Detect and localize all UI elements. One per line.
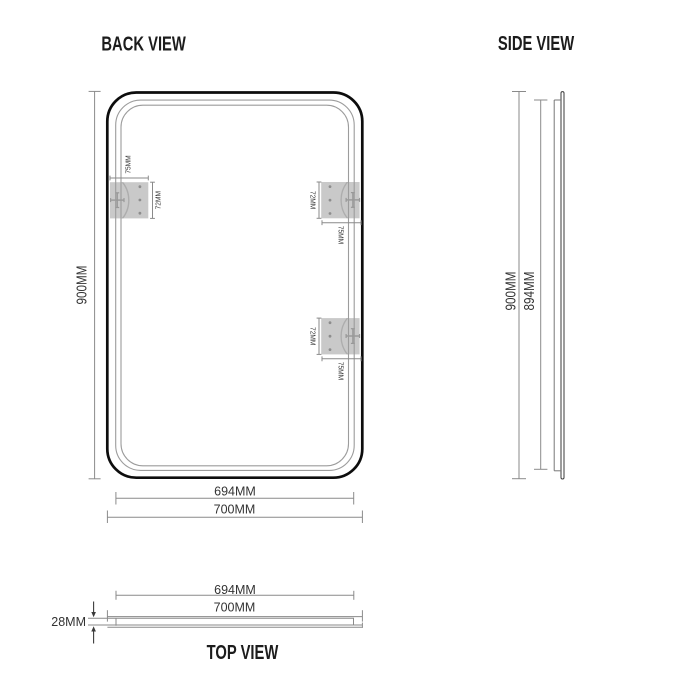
svg-text:900MM: 900MM [502, 272, 519, 311]
svg-text:75MM: 75MM [125, 155, 132, 173]
svg-text:700MM: 700MM [214, 601, 256, 615]
svg-text:SIDE VIEW: SIDE VIEW [498, 32, 574, 55]
svg-text:28MM: 28MM [51, 615, 86, 629]
svg-text:75MM: 75MM [336, 362, 343, 380]
svg-text:694MM: 694MM [214, 583, 256, 597]
svg-text:900MM: 900MM [73, 266, 90, 305]
svg-text:72MM: 72MM [155, 191, 162, 209]
svg-text:BACK VIEW: BACK VIEW [101, 32, 186, 55]
svg-text:700MM: 700MM [214, 503, 256, 517]
svg-text:72MM: 72MM [308, 191, 315, 209]
svg-text:75MM: 75MM [336, 226, 343, 244]
svg-text:TOP VIEW: TOP VIEW [207, 641, 279, 664]
svg-text:894MM: 894MM [520, 272, 537, 311]
svg-text:72MM: 72MM [308, 327, 315, 345]
svg-text:694MM: 694MM [214, 484, 256, 498]
